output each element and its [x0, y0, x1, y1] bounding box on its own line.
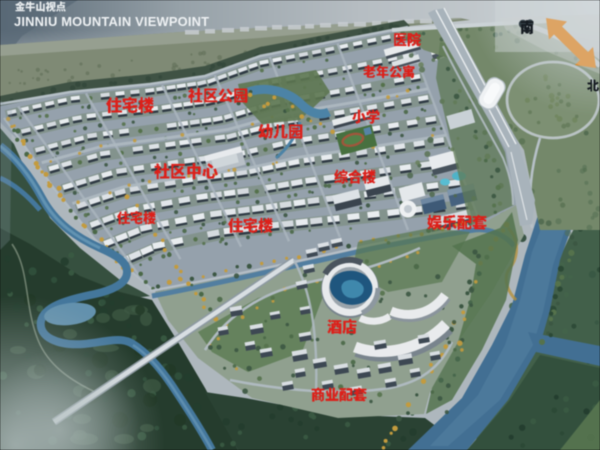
svg-text:JINNIU MOUNTAIN VIEWPOINT: JINNIU MOUNTAIN VIEWPOINT	[14, 14, 209, 29]
